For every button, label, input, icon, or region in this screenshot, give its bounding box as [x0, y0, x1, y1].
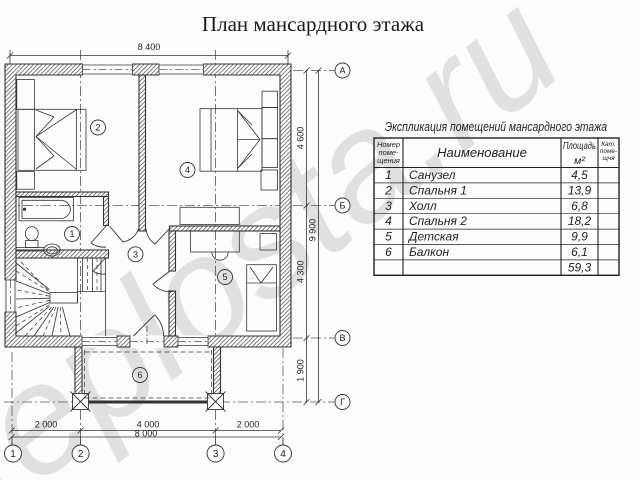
- svg-text:1 900: 1 900: [296, 359, 306, 382]
- svg-text:м²: м²: [574, 155, 585, 167]
- svg-text:3: 3: [385, 199, 392, 213]
- svg-text:4,5: 4,5: [571, 168, 588, 182]
- svg-text:1: 1: [69, 229, 74, 239]
- svg-text:3: 3: [133, 250, 138, 260]
- svg-text:8 400: 8 400: [138, 42, 161, 52]
- svg-text:4 600: 4 600: [296, 127, 306, 150]
- svg-text:2: 2: [95, 123, 100, 133]
- svg-text:Санузел: Санузел: [409, 168, 456, 182]
- svg-text:6: 6: [137, 370, 142, 380]
- svg-text:План мансардного этажа: План мансардного этажа: [202, 12, 425, 36]
- svg-text:5: 5: [222, 272, 227, 282]
- svg-text:9,9: 9,9: [571, 230, 588, 244]
- svg-text:13,9: 13,9: [568, 183, 592, 197]
- svg-text:59,3: 59,3: [568, 260, 592, 274]
- svg-text:Наименование: Наименование: [437, 145, 527, 160]
- svg-text:5: 5: [385, 230, 392, 244]
- svg-text:2 000: 2 000: [237, 420, 260, 430]
- svg-text:8 000: 8 000: [135, 429, 158, 439]
- svg-text:6,1: 6,1: [571, 245, 588, 259]
- svg-text:Экспликация помещений мансардн: Экспликация помещений мансардного этажа: [385, 120, 607, 134]
- svg-text:поме-: поме-: [600, 148, 618, 155]
- svg-text:Спальня 1: Спальня 1: [409, 183, 467, 197]
- svg-text:2 000: 2 000: [35, 420, 58, 430]
- svg-text:Б: Б: [340, 201, 346, 211]
- svg-text:2: 2: [78, 449, 84, 460]
- svg-text:4: 4: [280, 449, 286, 460]
- svg-text:4: 4: [185, 165, 190, 175]
- svg-text:9 900: 9 900: [308, 219, 318, 242]
- svg-text:щения: щения: [377, 156, 400, 165]
- svg-text:щчя: щчя: [602, 155, 615, 162]
- svg-text:А: А: [339, 66, 345, 76]
- svg-text:Спальня 2: Спальня 2: [409, 214, 467, 228]
- svg-text:Г: Г: [340, 397, 345, 407]
- svg-text:В: В: [339, 333, 345, 343]
- svg-text:2: 2: [384, 183, 392, 197]
- svg-text:Балкон: Балкон: [409, 245, 449, 259]
- svg-text:Холл: Холл: [408, 199, 437, 213]
- svg-text:3: 3: [213, 449, 219, 460]
- svg-text:6: 6: [385, 245, 392, 259]
- svg-text:1: 1: [10, 449, 16, 460]
- svg-text:Кат.: Кат.: [601, 141, 616, 148]
- svg-text:4: 4: [385, 214, 392, 228]
- svg-text:Площадь: Площадь: [563, 140, 596, 152]
- svg-text:6,8: 6,8: [571, 199, 588, 213]
- svg-text:1: 1: [385, 168, 392, 182]
- svg-text:Детская: Детская: [407, 230, 459, 244]
- svg-text:4 300: 4 300: [296, 260, 306, 283]
- svg-text:18,2: 18,2: [568, 214, 592, 228]
